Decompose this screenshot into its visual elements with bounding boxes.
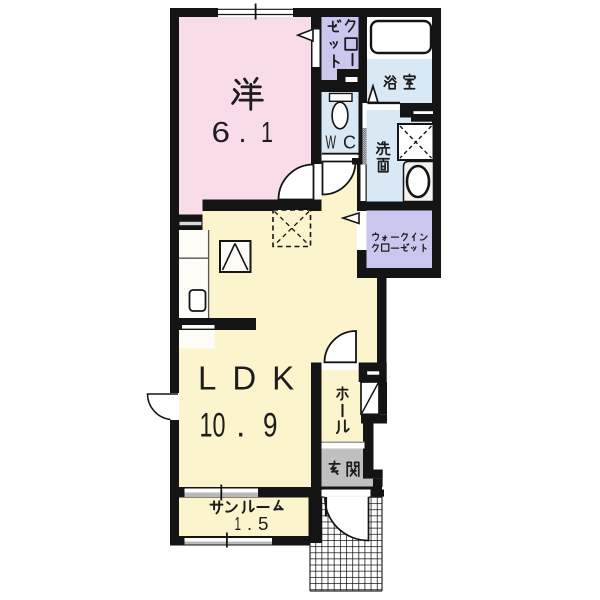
- svg-text:LDK: LDK: [198, 360, 310, 397]
- svg-text:1: 1: [261, 117, 273, 149]
- svg-text:6: 6: [212, 117, 231, 149]
- svg-text:W: W: [326, 133, 337, 153]
- svg-text:1: 1: [235, 514, 242, 534]
- svg-text:.: .: [236, 407, 245, 445]
- svg-text:.: .: [247, 514, 252, 534]
- svg-text:C: C: [343, 133, 356, 153]
- svg-text:.: .: [239, 117, 247, 149]
- svg-text:9: 9: [263, 407, 278, 445]
- svg-text:10: 10: [200, 407, 226, 445]
- svg-text:5: 5: [258, 514, 269, 534]
